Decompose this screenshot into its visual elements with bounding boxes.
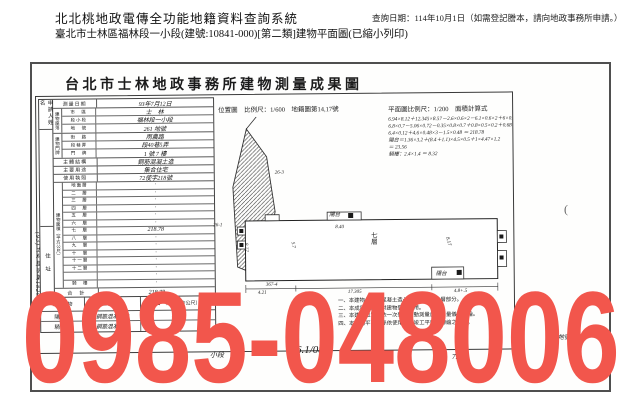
- usage-label: 主要用途: [54, 166, 98, 173]
- map-mark: 26-1: [213, 223, 222, 228]
- floor-plan-floor-label: 七層: [367, 232, 377, 245]
- floor-label: 十 層: [63, 250, 97, 257]
- floor-value: ·: [97, 189, 214, 197]
- map-mark: 26-3: [275, 171, 284, 176]
- floor-label: 五 層: [63, 212, 97, 219]
- street-label: 街 路: [62, 133, 96, 140]
- floor-label: 四 層: [63, 205, 97, 212]
- floor-label: 七 層: [63, 227, 97, 234]
- calc-lines: 6.94×8.12＋12.345×8.57－2.6×0.6×2－6.1×0.6×…: [388, 115, 512, 158]
- plan-scale-label: 平面圖比例尺：1/200 面積計算式: [388, 103, 487, 114]
- door-rows: 街 路 雨農路 段巷弄 段40巷5弄 門 牌 1 號 7 樓: [62, 132, 213, 157]
- floor-value: ·: [97, 211, 214, 219]
- floor-label: 三 層: [63, 197, 97, 204]
- floor-value: ·: [97, 249, 214, 257]
- dim-inner: 5.7: [290, 242, 296, 249]
- floor-label: 地面層: [63, 182, 97, 189]
- query-date: 查詢日期：114年10月1日（如需登記謄本，請向地政事務所申請。）: [372, 12, 622, 24]
- city-label: 市 區: [62, 108, 96, 115]
- survey-date-value: 93年7月12日: [97, 98, 213, 107]
- number-label: 門 牌: [63, 149, 97, 157]
- floor-value: ·: [97, 204, 214, 212]
- left-column-spacer: [39, 130, 53, 226]
- survey-date-label: 測量日期: [53, 99, 97, 107]
- calc-line: 陽台＝1.36×3.2＋(8.4＋1.1)×4.5×0.5＋1×4.47×1.2: [388, 136, 512, 144]
- document-title: 台北市士林地政事務所建物測量成果圖: [65, 74, 363, 94]
- lane-value: 段40巷5弄: [96, 140, 213, 148]
- section-value: 福林段一小段: [96, 115, 213, 123]
- floor-value: 218.78: [97, 226, 214, 234]
- system-title: 北北桃地政電傳全功能地籍資料查詢系統: [55, 8, 298, 27]
- parcel-label: 地 號: [62, 124, 96, 132]
- floor-label: 九 層: [63, 242, 97, 249]
- floor-value: ·: [97, 219, 214, 227]
- floor-value: ·: [97, 234, 214, 242]
- license-label: 使用執照: [54, 174, 98, 181]
- section-label: 段小段: [62, 116, 96, 123]
- city-value: 士 林: [96, 107, 213, 115]
- location-row: 地 號 261 地號: [62, 123, 213, 132]
- parcel-value: 261 地號: [96, 123, 213, 132]
- dim-top: 8.40: [335, 225, 344, 230]
- watermark-phone-number: 0985-048006: [22, 272, 620, 402]
- floor-value: ·: [98, 256, 215, 264]
- floor-label: 二 層: [63, 190, 97, 197]
- balcony-top-label: 陽台: [329, 210, 340, 218]
- applicant-label: 申請人姓名: [39, 100, 52, 130]
- location-rows: 市 區 士 林 段小段 福林段一小段 地 號 261 地號: [62, 107, 213, 132]
- lane-label: 段巷弄: [62, 141, 96, 148]
- number-value: 1 號 7 樓: [97, 148, 214, 157]
- license-value: 72使字218號: [98, 173, 214, 181]
- page: 北北桃地政電傳全功能地籍資料查詢系統 查詢日期：114年10月1日（如需登記謄本…: [0, 0, 640, 412]
- dim-left: 8.12: [243, 243, 249, 252]
- structure-label: 主體結構: [54, 158, 98, 165]
- calc-line: 騎樓：2.4×1.4 ＝ 8.32: [389, 150, 513, 158]
- floor-value: ·: [97, 181, 214, 189]
- floor-value: ·: [97, 241, 214, 249]
- page-subtitle: 臺北市士林區福林段一小段(建號:10841-000)[第二類]建物平面圖(已縮小…: [55, 26, 408, 41]
- floor-value: ·: [97, 196, 214, 204]
- door-group-label: 建物門牌: [53, 134, 62, 158]
- location-group-label: 建物座落: [53, 109, 62, 133]
- paren-mark: (: [564, 202, 568, 217]
- street-value: 雨農路: [96, 132, 213, 140]
- floor-label: 六 層: [63, 220, 97, 227]
- door-row: 門 牌 1 號 7 樓: [63, 148, 214, 157]
- location-group: 建物座落 市 區 士 林 段小段 福林段一小段 地 號: [53, 107, 213, 134]
- location-map-label: 位置圖 比例尺：1/600 地籍圖第14,17號: [218, 103, 339, 114]
- floor-label: 八 層: [63, 235, 97, 242]
- structure-value: 鋼筋混凝土造: [98, 157, 214, 165]
- usage-value: 集合住宅: [98, 165, 214, 173]
- door-group: 建物門牌 街 路 雨農路 段巷弄 段40巷5弄 門 牌: [53, 132, 213, 159]
